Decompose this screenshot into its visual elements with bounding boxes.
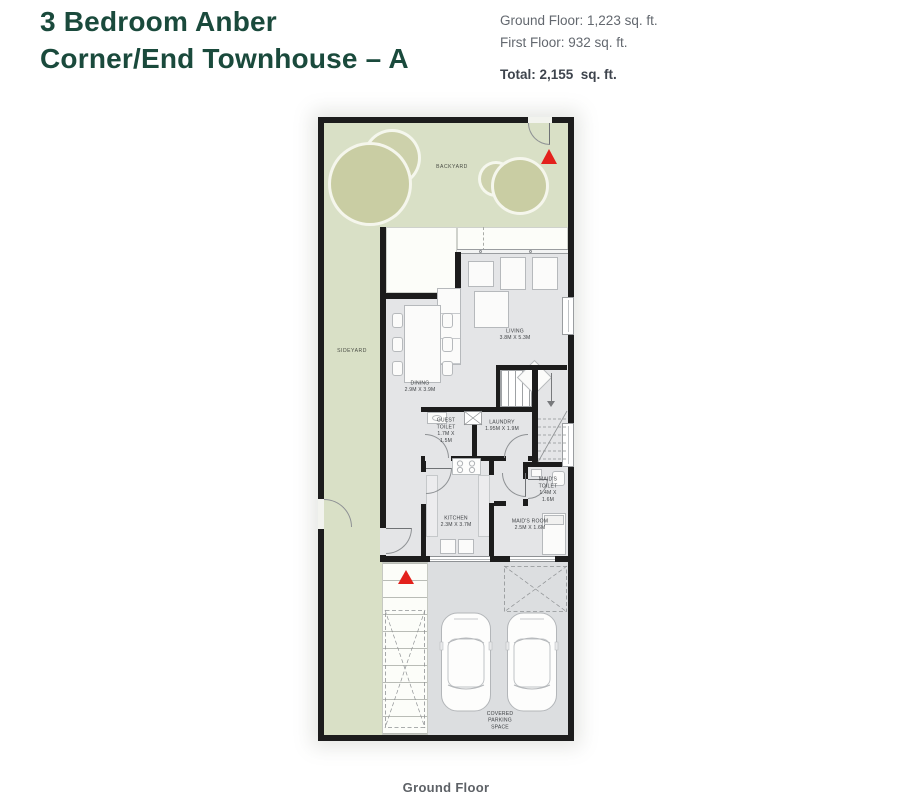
stair-direction-line (551, 373, 552, 403)
window (510, 556, 555, 562)
maids-toilet-dims: 1.4M X 1.6M (534, 490, 561, 504)
stat-total: Total: 2,155 sq. ft. (500, 64, 658, 86)
guest-toilet-dims: 1.7M X 1.5M (432, 431, 459, 445)
dining-label: DINING 2.9M X 3.9M (405, 380, 436, 394)
maids-room-name: MAID'S ROOM (512, 518, 548, 525)
kitchen-label: KITCHEN 2.3M X 3.7M (441, 515, 472, 529)
north-arrow-icon (541, 149, 557, 164)
dining-chair (392, 313, 403, 328)
wall-segment (523, 499, 528, 506)
sliding-door (457, 249, 568, 254)
slider-knob (529, 250, 532, 253)
stat-first-floor: First Floor: 932 sq. ft. (500, 32, 658, 54)
kitchen-sink (440, 539, 456, 554)
window (430, 556, 490, 562)
covered-parking-label: COVERED PARKING SPACE (479, 711, 522, 732)
wall-segment (489, 461, 494, 475)
parking-hatch-box (504, 566, 567, 612)
dining-chair (392, 337, 403, 352)
wall-segment (528, 456, 533, 461)
dining-table (404, 305, 441, 383)
balcony-deck (457, 227, 568, 251)
terrace-deck (386, 227, 457, 293)
armchair (468, 261, 494, 287)
window (562, 297, 574, 335)
guest-toilet-label: GUEST TOILET 1.7M X 1.5M (432, 417, 459, 445)
backyard-label: BACKYARD (436, 164, 468, 169)
deck-divider (483, 227, 484, 251)
wall-segment (490, 556, 510, 562)
living-name: LIVING (500, 328, 531, 335)
understair-hatch (538, 411, 567, 462)
laundry-label: LAUNDRY 1.95M X 1.9M (485, 419, 519, 433)
dishwasher (458, 539, 474, 554)
stair-direction-arrow (547, 401, 555, 407)
dining-chair (392, 361, 403, 376)
wall-segment (494, 501, 506, 506)
steps-hatch-box (385, 610, 425, 728)
entrance-arrow-icon (398, 570, 414, 584)
dining-dims: 2.9M X 3.9M (405, 387, 436, 394)
maids-toilet-name: MAID'S TOILET (534, 476, 561, 490)
title-line-1: 3 Bedroom Anber (40, 4, 409, 41)
laundry-name: LAUNDRY (485, 419, 519, 426)
covered-parking-text: COVERED PARKING SPACE (479, 711, 522, 732)
sofa-seat (532, 257, 558, 290)
car-icon (440, 609, 492, 715)
stove (452, 458, 481, 475)
dining-chair (442, 313, 453, 328)
living-label: LIVING 3.8M X 5.3M (500, 328, 531, 342)
kitchen-name: KITCHEN (441, 515, 472, 522)
dining-chair (442, 361, 453, 376)
maids-room-dims: 2.5M X 1.6M (512, 525, 548, 532)
laundry-dims: 1.95M X 1.9M (485, 426, 519, 433)
sideyard-label: SIDEYARD (337, 348, 367, 353)
wall-segment (489, 503, 494, 556)
living-dims: 3.8M X 5.3M (500, 335, 531, 342)
stat-ground-floor: Ground Floor: 1,223 sq. ft. (500, 10, 658, 32)
car-icon (506, 609, 558, 715)
coffee-table (474, 291, 509, 328)
dining-chair (442, 337, 453, 352)
sofa-seat (500, 257, 526, 290)
tree-icon (328, 142, 412, 226)
area-stats: Ground Floor: 1,223 sq. ft. First Floor:… (500, 10, 658, 86)
dining-name: DINING (405, 380, 436, 387)
wall-segment (380, 556, 430, 562)
kitchen-dims: 2.3M X 3.7M (441, 522, 472, 529)
wall-segment (496, 370, 500, 407)
page-title: 3 Bedroom Anber Corner/End Townhouse – A (40, 4, 409, 78)
shaft-box (464, 411, 482, 425)
page: 3 Bedroom Anber Corner/End Townhouse – A… (0, 0, 920, 808)
wall-segment (380, 227, 386, 528)
door-arc (324, 499, 352, 527)
title-line-2: Corner/End Townhouse – A (40, 41, 409, 78)
slider-knob (479, 250, 482, 253)
tree-icon (491, 157, 549, 215)
wall-segment (555, 556, 568, 562)
floor-plan: BACKYARD SIDEYARD (318, 117, 574, 741)
guest-toilet-name: GUEST TOILET (432, 417, 459, 431)
floor-caption: Ground Floor (318, 780, 574, 795)
maids-toilet-label: MAID'S TOILET 1.4M X 1.6M (534, 476, 561, 504)
wall-segment (421, 504, 426, 556)
door-arc (528, 123, 550, 145)
maids-room-label: MAID'S ROOM 2.5M X 1.6M (512, 518, 548, 532)
